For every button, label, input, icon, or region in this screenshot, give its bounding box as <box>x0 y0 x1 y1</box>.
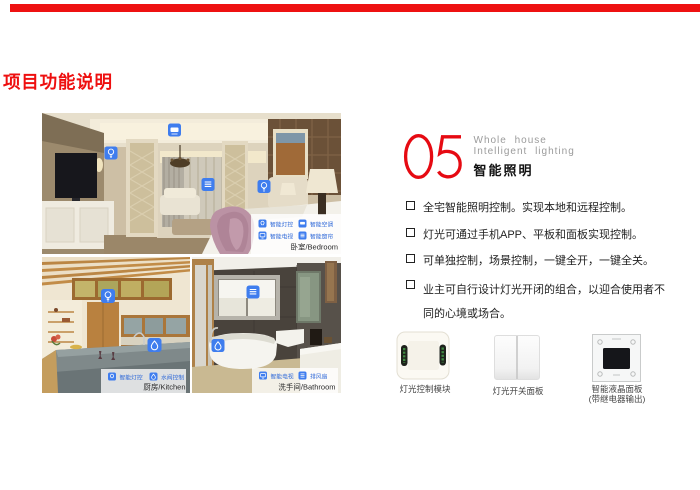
svg-text:洗手间/Bathroom: 洗手间/Bathroom <box>278 382 335 392</box>
svg-text:卧室/Bedroom: 卧室/Bedroom <box>290 242 338 252</box>
svg-text:智能电视: 智能电视 <box>271 373 294 381</box>
svg-text:智能电视: 智能电视 <box>270 233 293 241</box>
svg-text:智能窗帘: 智能窗帘 <box>310 233 333 241</box>
svg-text:智能空调: 智能空调 <box>310 221 333 229</box>
svg-text:排风扇: 排风扇 <box>310 373 328 381</box>
svg-text:厨房/Kitchen: 厨房/Kitchen <box>143 382 185 392</box>
svg-text:智能灯控: 智能灯控 <box>270 221 293 229</box>
svg-text:水阀控制: 水阀控制 <box>161 374 184 382</box>
svg-text:智能灯控: 智能灯控 <box>120 374 143 382</box>
